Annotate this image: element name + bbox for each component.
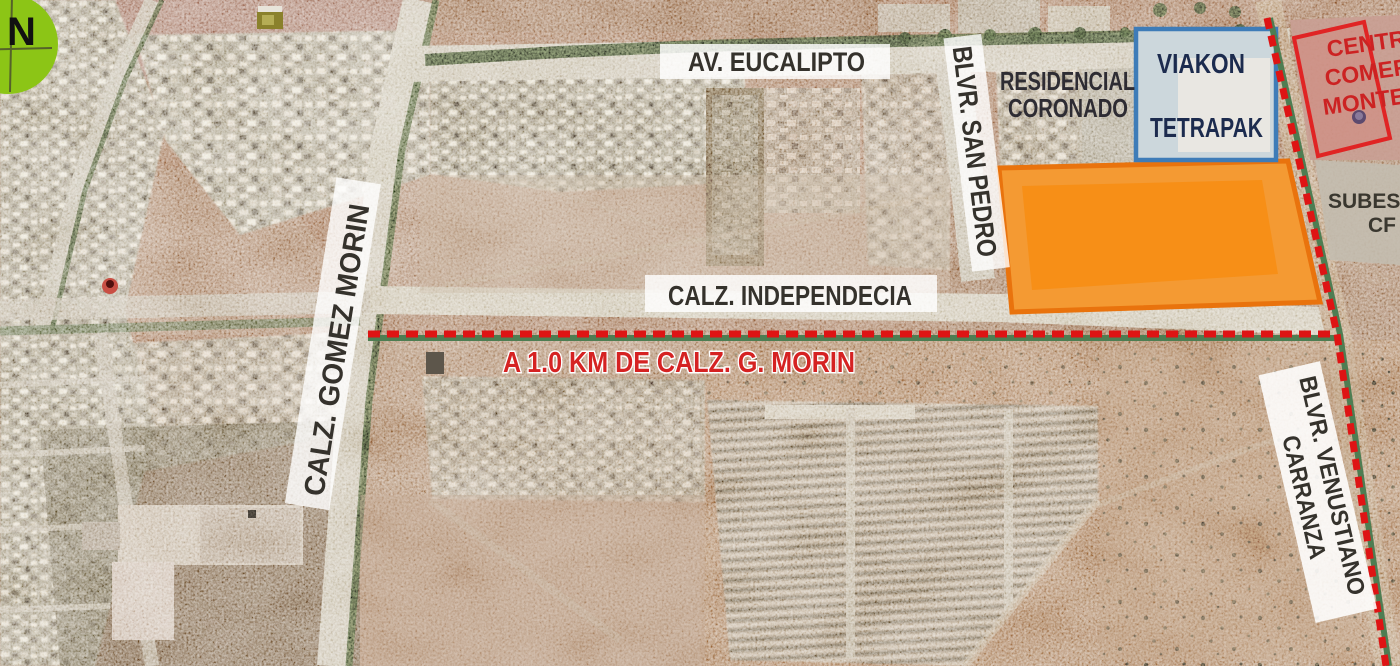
svg-text:VIAKON: VIAKON — [1157, 48, 1245, 79]
svg-text:CORONADO: CORONADO — [1008, 93, 1128, 123]
svg-text:RESIDENCIAL: RESIDENCIAL — [1000, 66, 1135, 96]
svg-text:CALZ. INDEPENDECIA: CALZ. INDEPENDECIA — [668, 280, 912, 311]
svg-text:TETRAPAK: TETRAPAK — [1150, 112, 1263, 143]
svg-text:N: N — [7, 10, 36, 54]
svg-text:CF: CF — [1368, 214, 1396, 237]
svg-text:A 1.0 KM DE CALZ. G. MORIN: A 1.0 KM DE CALZ. G. MORIN — [503, 347, 855, 379]
svg-text:SUBESTA: SUBESTA — [1328, 190, 1400, 213]
svg-text:AV. EUCALIPTO: AV. EUCALIPTO — [688, 47, 865, 77]
